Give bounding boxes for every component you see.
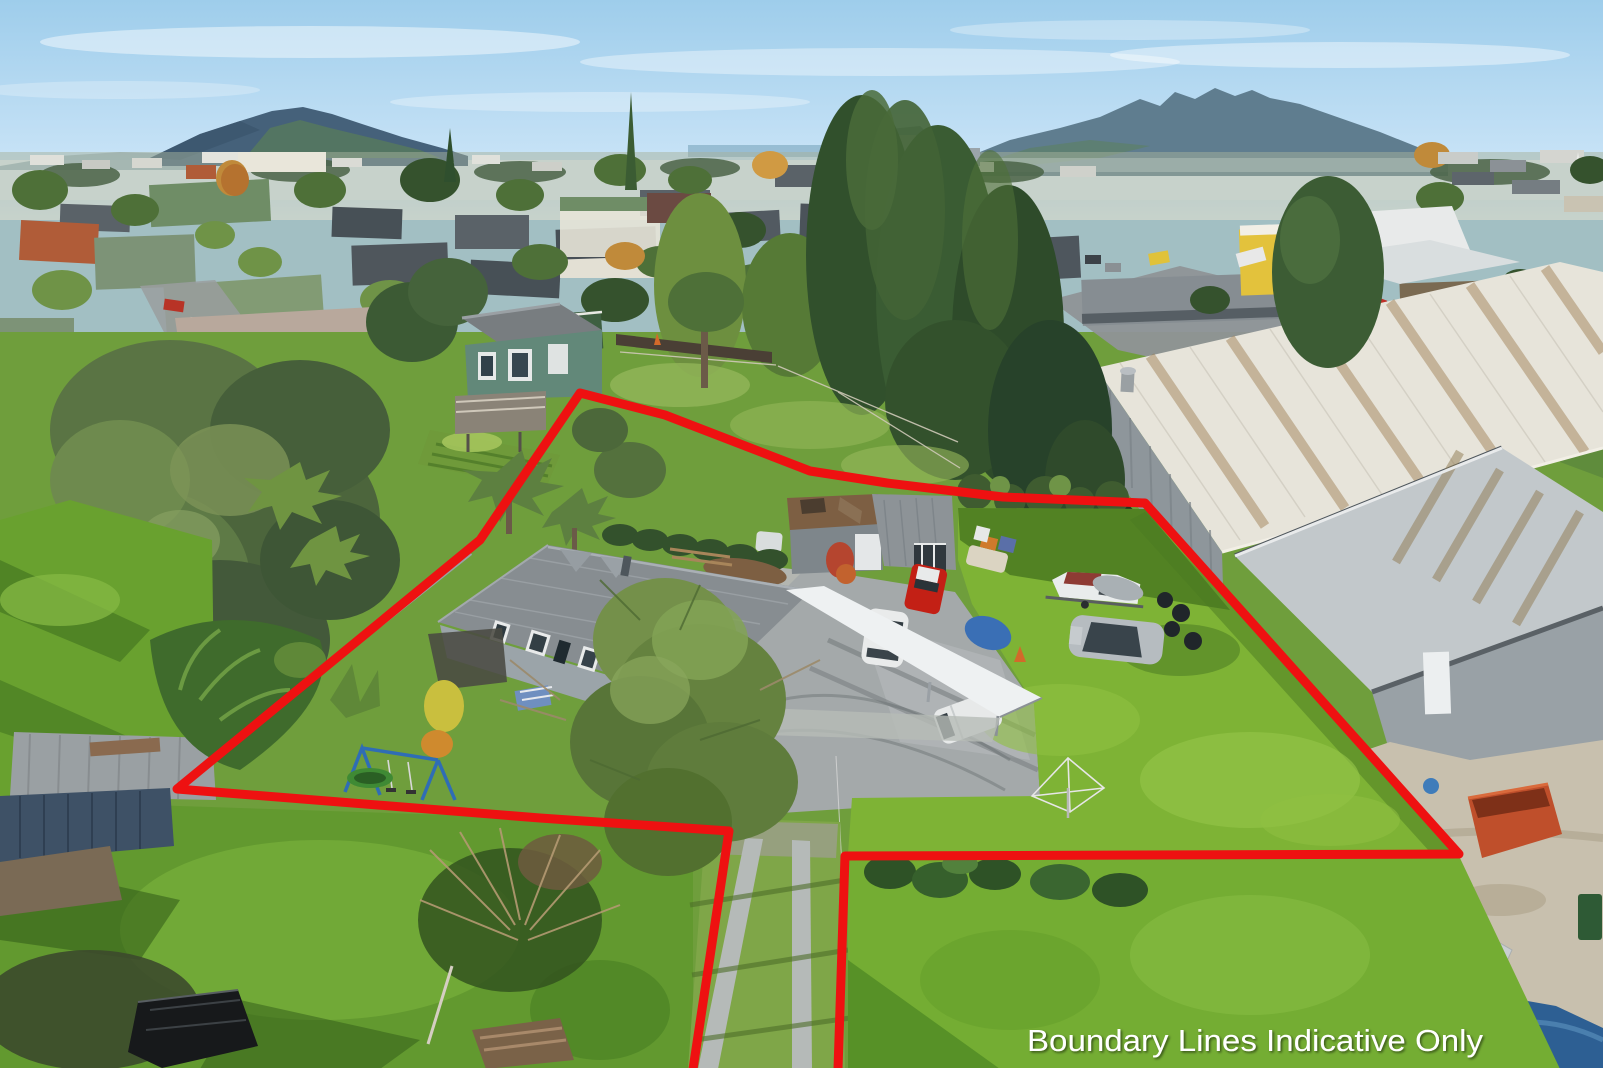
caption-text: Boundary Lines Indicative Only	[1027, 1023, 1484, 1058]
green-wheelie-bin	[1578, 894, 1602, 940]
aerial-photo: Boundary Lines Indicative Only	[0, 0, 1603, 1068]
sheds	[787, 494, 956, 574]
blue-bucket	[1423, 778, 1439, 794]
round-tree-right	[1272, 176, 1384, 368]
warehouse-door	[1423, 652, 1451, 715]
yellow-bush	[424, 680, 464, 732]
orange-bush	[421, 730, 453, 758]
trampoline	[347, 768, 393, 788]
